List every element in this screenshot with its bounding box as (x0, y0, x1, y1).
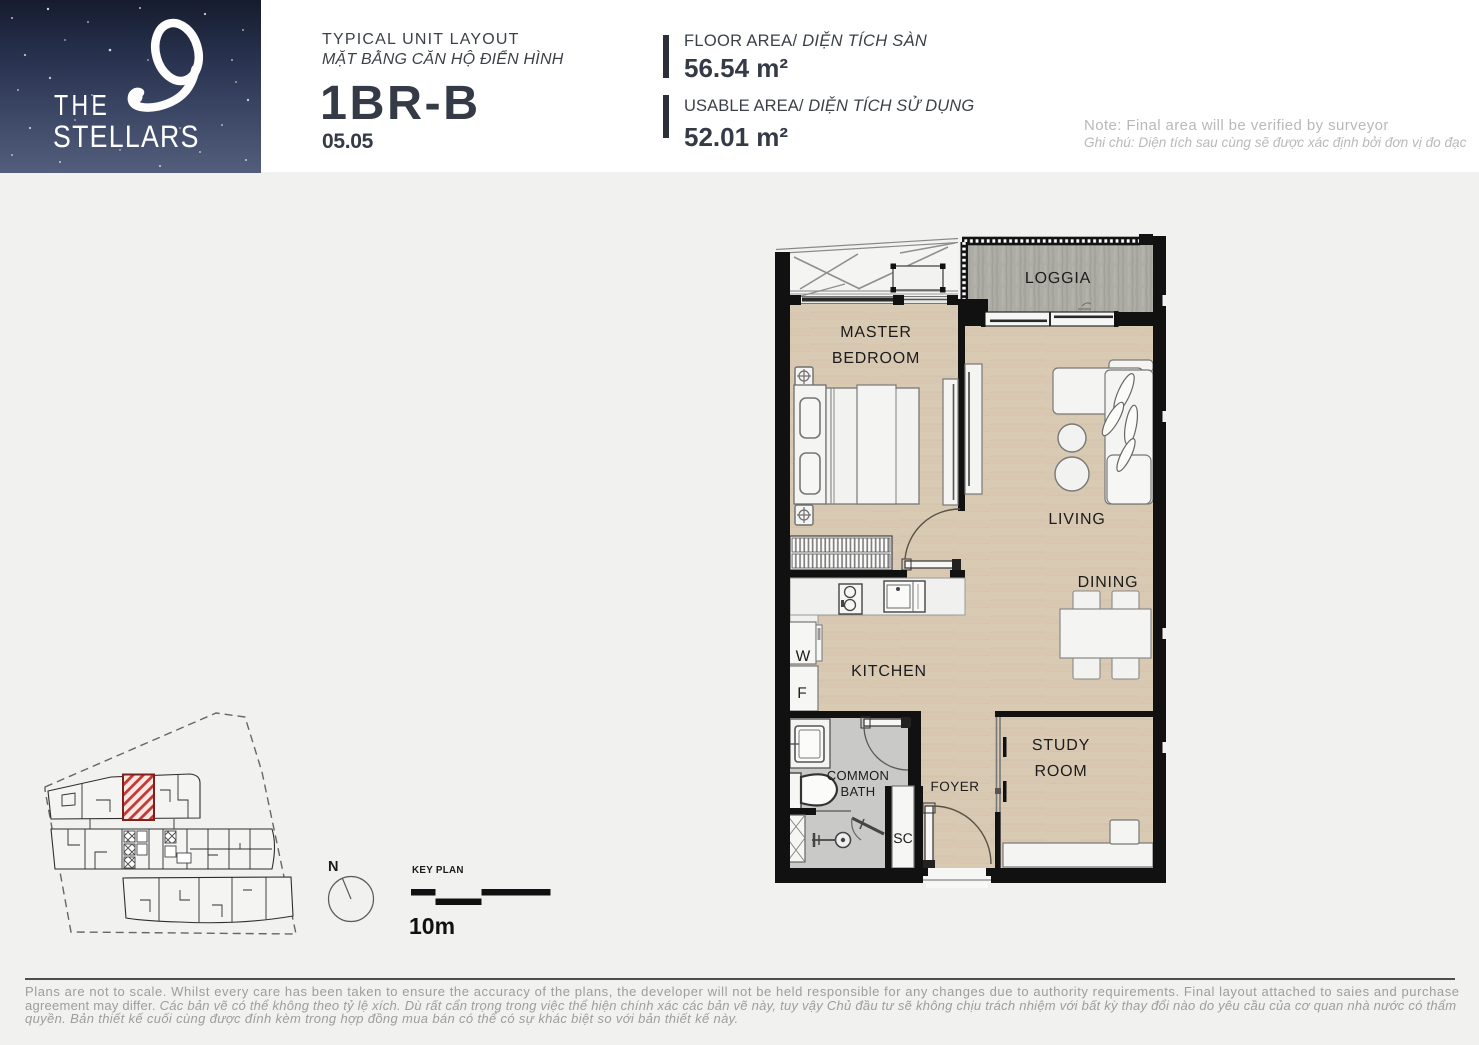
svg-text:F: F (797, 685, 806, 702)
svg-text:BATH: BATH (841, 784, 876, 799)
svg-text:DINING: DINING (1078, 574, 1139, 591)
svg-text:STELLARS: STELLARS (53, 119, 200, 154)
svg-text:ROOM: ROOM (1035, 763, 1088, 780)
svg-text:COMMON: COMMON (827, 768, 889, 783)
svg-text:KITCHEN: KITCHEN (851, 663, 927, 680)
svg-text:LOGGIA: LOGGIA (1025, 270, 1091, 287)
svg-text:W: W (796, 648, 811, 665)
svg-text:BEDROOM: BEDROOM (832, 350, 920, 367)
svg-text:STUDY: STUDY (1032, 737, 1090, 754)
svg-text:LIVING: LIVING (1048, 511, 1105, 528)
svg-text:THE: THE (54, 90, 110, 122)
svg-text:MASTER: MASTER (840, 324, 911, 341)
svg-text:SC: SC (893, 830, 912, 846)
svg-text:FOYER: FOYER (930, 779, 979, 794)
